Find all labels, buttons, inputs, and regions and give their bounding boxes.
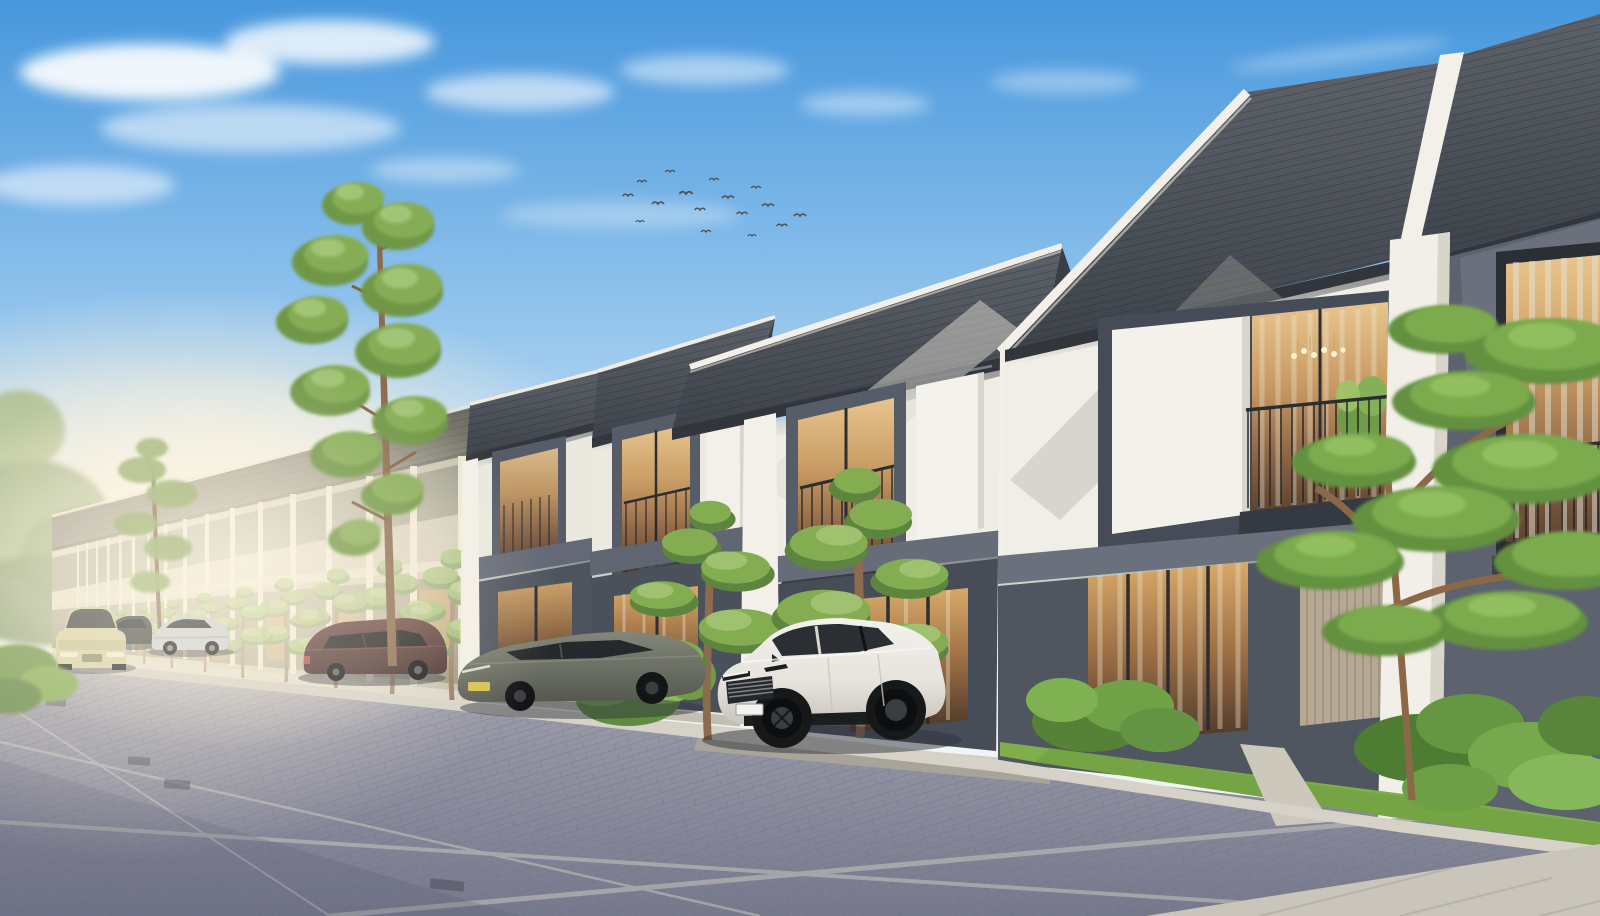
rendered-photo: Row of modern two-storey townhouses in w… — [0, 0, 1600, 916]
sliding-shutter — [916, 372, 984, 544]
license-plate — [736, 704, 763, 715]
sliding-shutter — [1112, 316, 1250, 534]
townhouse-street-render: Row of modern two-storey townhouses in w… — [0, 0, 1600, 916]
